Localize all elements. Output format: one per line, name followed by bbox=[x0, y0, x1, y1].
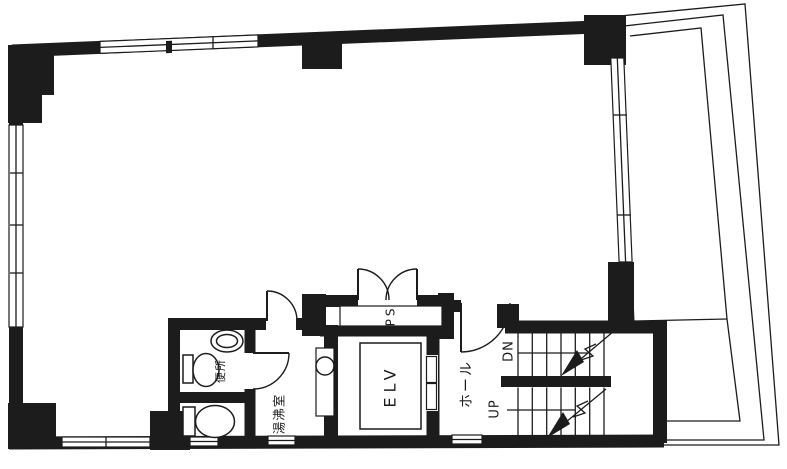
kitchenette-door-swing bbox=[267, 291, 297, 321]
stair-arrow-down-head bbox=[561, 350, 584, 376]
sink-bowl bbox=[316, 357, 334, 375]
toilet-door bbox=[253, 353, 289, 389]
wash-basin-inner bbox=[217, 335, 238, 348]
elevator-door-panel-upper bbox=[427, 357, 437, 383]
label-hall: ホール bbox=[459, 360, 475, 408]
stair-arrow-up-head bbox=[547, 412, 570, 438]
label-stairs-down: DN bbox=[502, 340, 517, 362]
window-right bbox=[611, 58, 632, 262]
stair-arrow-up bbox=[547, 389, 606, 438]
site-boundary-outer-line bbox=[620, 4, 779, 445]
label-pipe-shaft: PS bbox=[384, 306, 398, 327]
wall-stair-divider bbox=[501, 376, 611, 387]
window-top bbox=[100, 35, 258, 54]
toilet-2-tank bbox=[183, 407, 195, 436]
column-bottom-left bbox=[8, 403, 56, 449]
column-top-left-b bbox=[8, 45, 54, 95]
ps-double-door bbox=[358, 269, 417, 300]
toilet-door-swing bbox=[253, 353, 289, 389]
column-right-lower bbox=[608, 262, 634, 330]
window-top-mullion bbox=[166, 41, 172, 54]
column-top-middle bbox=[302, 33, 342, 69]
ps-door-swing-left bbox=[358, 269, 389, 300]
kitchenette-entry-door bbox=[267, 291, 297, 321]
wall-toilet-divider bbox=[176, 392, 246, 403]
label-stairs-up: UP bbox=[488, 399, 503, 418]
balcony-line bbox=[630, 28, 740, 421]
site-boundary bbox=[620, 4, 779, 445]
elevator-door-panel-lower bbox=[427, 384, 437, 410]
label-kitchenette: 湯沸室 bbox=[272, 394, 287, 435]
floor-plan-drawing: 便所 湯沸室 PS ELV ホール U bbox=[0, 0, 787, 469]
floor-plan-page: 便所 湯沸室 PS ELV ホール U bbox=[0, 0, 787, 469]
toilet-1-tank bbox=[183, 355, 193, 383]
label-elevator: ELV bbox=[381, 364, 400, 407]
window-left bbox=[9, 125, 23, 327]
elevator-shaft: ELV bbox=[360, 343, 438, 429]
site-boundary-mid-line bbox=[624, 15, 764, 440]
ps-door-swing-right bbox=[386, 269, 417, 300]
toilet-2-bowl bbox=[196, 406, 235, 438]
label-toilet: 便所 bbox=[214, 359, 227, 383]
